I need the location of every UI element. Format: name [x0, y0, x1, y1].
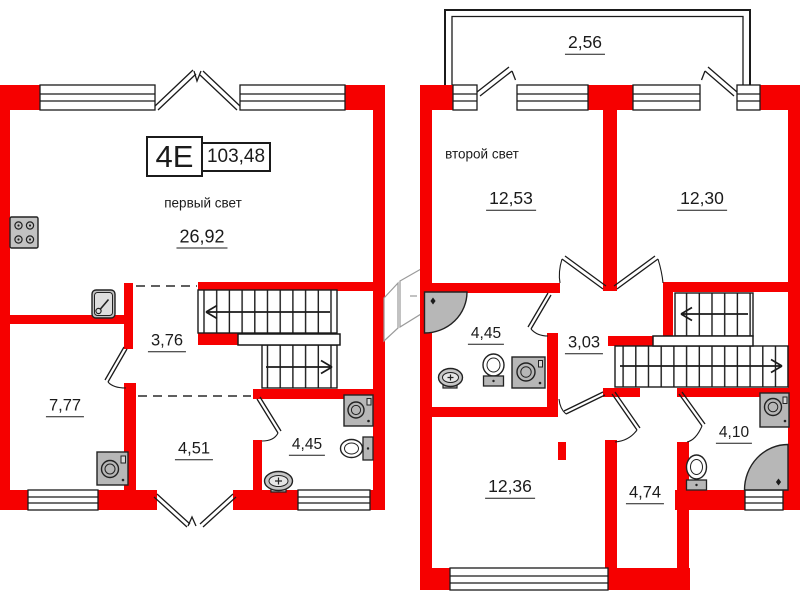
plan-shape [783, 397, 787, 404]
door-arc [559, 259, 562, 283]
door-leaf [562, 256, 606, 289]
plan-shape [122, 479, 125, 482]
plan-shape [17, 224, 19, 226]
plan-shape [450, 568, 608, 590]
window [28, 490, 98, 510]
stove-icon [10, 217, 38, 248]
plan-shape [539, 382, 542, 385]
plan-shape [29, 224, 31, 226]
plan-shape [348, 402, 364, 418]
plan-shape [367, 447, 369, 449]
unit-number-box: 4E [146, 136, 203, 177]
window [517, 85, 588, 110]
wall-segment [603, 110, 617, 291]
balcony-door-leaf [200, 71, 240, 110]
window [240, 85, 345, 110]
plan-shape [453, 85, 477, 110]
wall-segment [253, 440, 262, 490]
door-arc [658, 259, 663, 283]
floor1-caption: первый свет [164, 196, 242, 210]
plan-shape [17, 238, 19, 240]
floor2-plan [420, 10, 800, 590]
plan-shape [765, 399, 782, 416]
wall-segment [588, 85, 633, 110]
door-leaf [564, 392, 605, 414]
plan-shape [102, 461, 119, 478]
plan-canvas [0, 0, 800, 600]
door-break [188, 517, 196, 526]
area-label-living: 26,92 [176, 228, 227, 249]
door-leaf [528, 293, 551, 329]
wall-segment [783, 490, 800, 510]
plan-shape [517, 85, 588, 110]
toilet-icon [687, 455, 707, 490]
plan-shape [517, 363, 535, 381]
area-label-bath-upper-f2: 4,45 [468, 326, 504, 345]
wall-segment [198, 333, 238, 345]
toilet-icon [341, 437, 374, 460]
corner-bathtub-icon [745, 445, 789, 491]
area-label-bedroom-lower: 12,36 [485, 478, 535, 499]
area-label-hall-f2: 3,03 [565, 334, 603, 354]
plan-shape [539, 361, 543, 368]
entrance-door-leaf [154, 494, 190, 527]
area-label-bath-lower-f2: 4,10 [716, 425, 752, 444]
window [40, 85, 155, 110]
entrance-door-leaf [200, 494, 236, 527]
door-leaf [257, 397, 281, 433]
wall-segment [675, 490, 745, 510]
wall-segment [605, 440, 617, 568]
plan-shape [240, 85, 345, 110]
wall-segment [98, 490, 157, 510]
area-label-room-474: 4,74 [626, 484, 664, 504]
plan-shape [483, 354, 504, 376]
wall-segment [420, 407, 558, 417]
balcony-door-leaf [155, 70, 196, 110]
washing-machine-icon [512, 357, 545, 388]
window [737, 85, 760, 110]
washing-machine-icon [344, 395, 373, 426]
wall-segment [788, 85, 800, 510]
door-leaf [612, 392, 640, 430]
plan-shape [737, 85, 760, 110]
area-label-bath-f1: 4,45 [289, 437, 325, 456]
kitchen-sink-icon [92, 290, 115, 318]
unit-total-area-box: 103,48 [201, 142, 271, 172]
plan-shape [29, 238, 31, 240]
toilet-icon [483, 354, 504, 386]
plan-shape [28, 490, 98, 510]
plan-shape [341, 440, 363, 458]
plan-shape [653, 336, 753, 346]
window [633, 85, 700, 110]
door-arc [687, 426, 702, 442]
plan-shape [745, 445, 789, 491]
plan-shape [95, 293, 113, 316]
wall-segment [233, 490, 300, 510]
washing-machine-icon [760, 393, 789, 427]
door-arc [108, 382, 126, 388]
plan-shape [238, 334, 340, 345]
area-label-bedroom-right: 12,30 [677, 190, 727, 211]
plan-shape [400, 269, 421, 327]
door-arc [559, 399, 566, 414]
wall-segment [547, 333, 558, 407]
plan-shape [687, 455, 707, 479]
window [453, 85, 477, 110]
window [745, 490, 783, 510]
plan-shape [745, 490, 783, 510]
plan-shape [425, 292, 468, 333]
area-label-corridor: 4,51 [175, 440, 213, 460]
wall-segment [124, 283, 133, 349]
plan-shape [121, 456, 126, 463]
balcony-door-leaf [705, 67, 737, 96]
wall-segment [603, 388, 640, 397]
wall-segment [0, 490, 28, 510]
door-leaf [105, 347, 127, 382]
plan-shape [40, 85, 155, 110]
plan-shape [384, 283, 398, 341]
wall-segment [663, 282, 800, 292]
unit-total-area: 103,48 [207, 146, 265, 168]
plan-shape [298, 490, 370, 510]
floor2-caption: второй свет [445, 147, 519, 161]
door-break [512, 71, 516, 80]
area-label-bedroom-left: 12,53 [486, 190, 536, 211]
door-arc [615, 430, 637, 442]
plan-shape [784, 420, 787, 423]
window [298, 490, 370, 510]
plan-shape [10, 217, 38, 248]
floor-plan: 4E 103,48 первый свет 26,92 3,76 7,77 4,… [0, 0, 800, 600]
wall-segment [420, 568, 450, 590]
entry-door-icon [384, 269, 421, 341]
unit-number: 4E [156, 139, 194, 175]
wall-segment [608, 568, 690, 590]
wall-segment [0, 85, 10, 510]
wall-segment [373, 85, 385, 510]
plan-shape [367, 420, 370, 423]
area-label-hall-f1: 3,76 [148, 332, 186, 352]
plan-shape [695, 484, 697, 486]
area-label-room-777: 7,77 [46, 397, 84, 417]
door-leaf [679, 392, 705, 426]
wall-segment [608, 336, 653, 346]
door-leaf [614, 256, 658, 289]
door-arc [531, 329, 548, 336]
wall-segment [558, 442, 566, 460]
shower-cabin-icon [425, 292, 468, 333]
plan-shape [492, 380, 494, 382]
door-break [194, 71, 201, 81]
plan-shape [633, 85, 700, 110]
door-arc [262, 433, 278, 441]
plan-shape [367, 399, 371, 406]
balcony-door-leaf [477, 67, 512, 96]
wall-segment [0, 85, 40, 110]
window [450, 568, 608, 590]
area-label-balcony: 2,56 [565, 34, 605, 55]
washbasin-icon [265, 472, 293, 493]
door-break [702, 71, 706, 80]
washbasin-icon [439, 369, 463, 389]
washing-machine-icon [97, 452, 128, 485]
wall-segment [420, 85, 432, 590]
